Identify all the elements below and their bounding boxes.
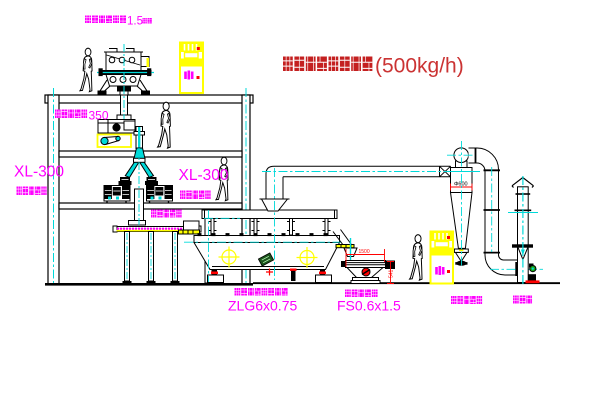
svg-text:541: 541 (389, 269, 395, 278)
svg-text:XL-300: XL-300 (179, 167, 229, 184)
svg-text:FS0.6x1.5: FS0.6x1.5 (337, 298, 401, 314)
svg-text:350: 350 (89, 109, 109, 123)
svg-text:ZLG6x0.75: ZLG6x0.75 (228, 298, 297, 314)
svg-text:1500: 1500 (359, 249, 370, 255)
svg-text:Φ600: Φ600 (454, 182, 468, 188)
svg-text:(500kg/h): (500kg/h) (375, 55, 464, 78)
svg-text:1.5: 1.5 (127, 16, 143, 28)
svg-text:XL-300: XL-300 (14, 164, 64, 181)
